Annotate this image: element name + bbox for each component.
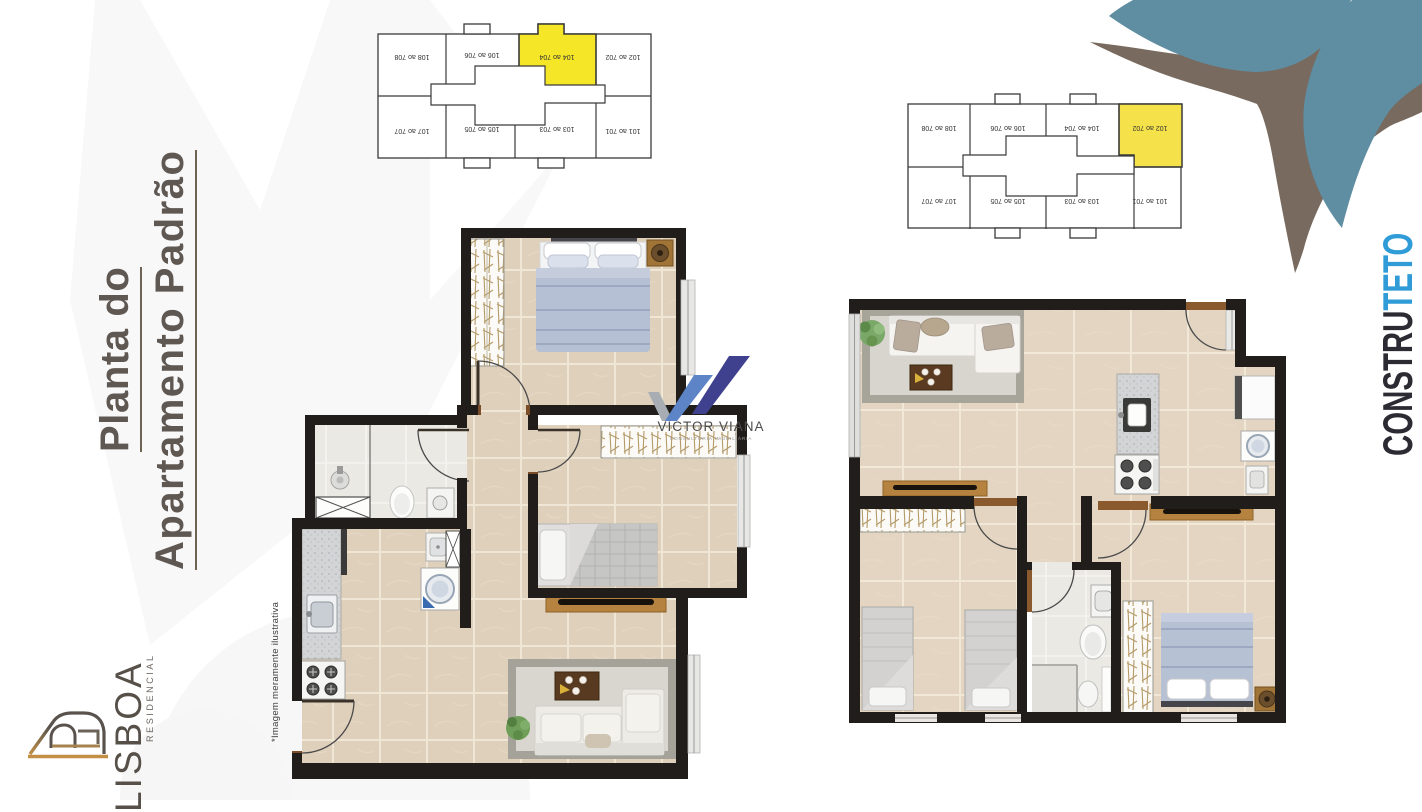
svg-text:108 ao 708: 108 ao 708 xyxy=(921,124,956,131)
svg-text:102 ao 702: 102 ao 702 xyxy=(605,53,640,60)
svg-text:106 ao 706: 106 ao 706 xyxy=(990,124,1025,131)
svg-text:101 ao 701: 101 ao 701 xyxy=(1132,197,1167,204)
svg-text:103 ao 703: 103 ao 703 xyxy=(1064,197,1099,204)
svg-text:104 ao 704: 104 ao 704 xyxy=(1064,124,1099,131)
svg-text:108 ao 708: 108 ao 708 xyxy=(394,53,429,60)
svg-text:VICTOR VIANA: VICTOR VIANA xyxy=(657,419,764,434)
svg-text:103 ao 703: 103 ao 703 xyxy=(539,125,574,132)
svg-text:104 ao 704: 104 ao 704 xyxy=(539,53,574,60)
svg-text:CONSULTORIA IMOBILIÁRIA: CONSULTORIA IMOBILIÁRIA xyxy=(670,435,752,442)
svg-text:105 ao 705: 105 ao 705 xyxy=(990,197,1025,204)
svg-text:106 ao 706: 106 ao 706 xyxy=(464,51,499,58)
svg-text:102 ao 702: 102 ao 702 xyxy=(1132,124,1167,131)
svg-text:105 ao 705: 105 ao 705 xyxy=(464,125,499,132)
svg-text:101 ao 701: 101 ao 701 xyxy=(605,127,640,134)
svg-text:107 ao 707: 107 ao 707 xyxy=(921,197,956,204)
svg-text:107 ao 707: 107 ao 707 xyxy=(394,127,429,134)
